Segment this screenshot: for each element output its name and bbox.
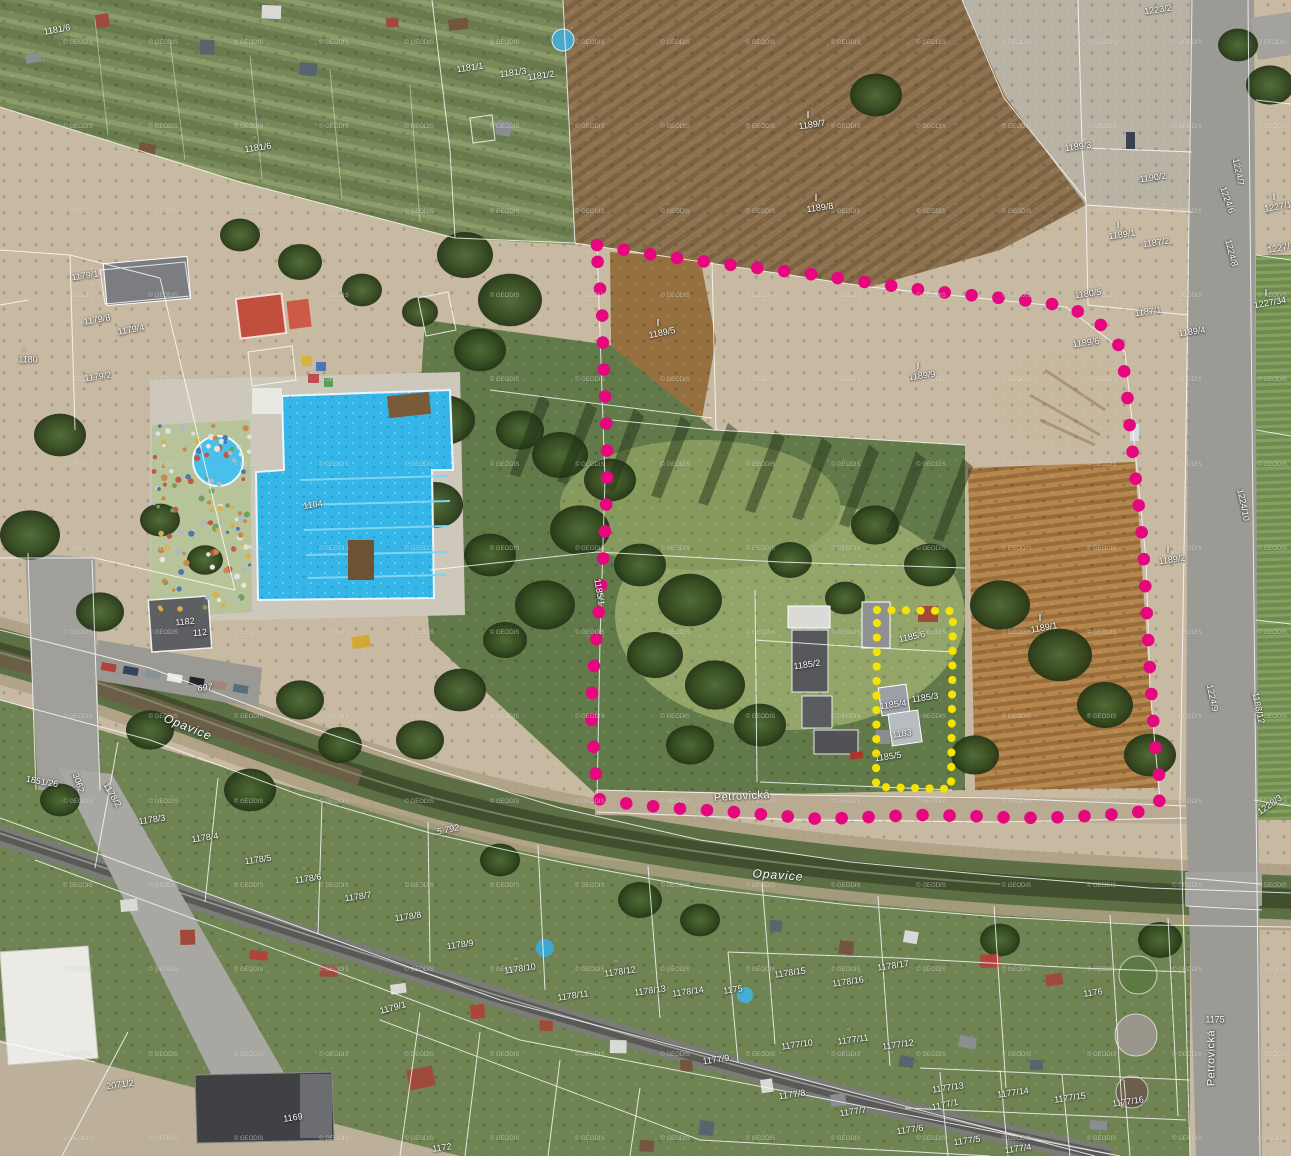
boundary-dot xyxy=(947,748,955,756)
copyright-watermark: © GEODIS xyxy=(404,1136,433,1142)
copyright-watermark: © GEODIS xyxy=(1002,462,1031,468)
copyright-watermark: © GEODIS xyxy=(660,1136,689,1142)
boundary-dot xyxy=(948,647,956,655)
copyright-watermark: © GEODIS xyxy=(149,377,178,383)
copyright-watermark: © GEODIS xyxy=(319,462,348,468)
tree xyxy=(0,510,60,559)
tree xyxy=(1077,682,1133,728)
copyright-watermark: © GEODIS xyxy=(319,1052,348,1058)
garden-shed xyxy=(200,40,215,55)
copyright-watermark: © GEODIS xyxy=(1087,124,1116,130)
copyright-watermark: © GEODIS xyxy=(575,293,604,299)
copyright-watermark: © GEODIS xyxy=(490,883,519,889)
tree xyxy=(224,769,276,812)
tree xyxy=(685,660,745,709)
copyright-watermark: © GEODIS xyxy=(234,1136,263,1142)
pavilion xyxy=(252,388,282,414)
beachgoer xyxy=(175,477,181,483)
boundary-dot xyxy=(947,777,955,785)
copyright-watermark: © GEODIS xyxy=(1087,546,1116,552)
copyright-watermark: © GEODIS xyxy=(1172,377,1201,383)
copyright-watermark: © GEODIS xyxy=(1257,40,1286,46)
beachgoer xyxy=(243,425,249,431)
garden-shed xyxy=(1089,1120,1107,1130)
beachgoer xyxy=(207,500,211,504)
boundary-dot xyxy=(970,810,983,823)
boundary-dot xyxy=(887,606,895,614)
beachgoer xyxy=(177,586,182,591)
copyright-watermark: © GEODIS xyxy=(746,1136,775,1142)
beachgoer xyxy=(157,487,161,491)
copyright-watermark: © GEODIS xyxy=(831,714,860,720)
copyright-watermark: © GEODIS xyxy=(1002,124,1031,130)
boundary-dot xyxy=(873,619,881,627)
copyright-watermark: © GEODIS xyxy=(63,1052,92,1058)
copyright-watermark: © GEODIS xyxy=(490,1052,519,1058)
boundary-dot xyxy=(945,607,953,615)
copyright-watermark: © GEODIS xyxy=(149,630,178,636)
boundary-dot xyxy=(948,661,956,669)
road-bridge xyxy=(1185,872,1262,906)
copyright-watermark: © GEODIS xyxy=(1087,377,1116,383)
beachgoer xyxy=(212,592,218,598)
copyright-watermark: © GEODIS xyxy=(319,967,348,973)
garden-shed xyxy=(680,1059,693,1072)
copyright-watermark: © GEODIS xyxy=(404,293,433,299)
tree xyxy=(658,574,722,626)
boundary-dot xyxy=(1132,806,1145,819)
crop-field-right xyxy=(1256,255,1291,820)
orthophoto-layer xyxy=(0,0,1291,1156)
copyright-watermark: © GEODIS xyxy=(63,799,92,805)
boundary-dot xyxy=(1145,688,1158,701)
copyright-watermark: © GEODIS xyxy=(1257,1136,1286,1142)
copyright-watermark: © GEODIS xyxy=(149,799,178,805)
copyright-watermark: © GEODIS xyxy=(1172,546,1201,552)
copyright-watermark: © GEODIS xyxy=(319,883,348,889)
beachgoer xyxy=(241,477,245,481)
industrial-building xyxy=(0,946,98,1065)
apartment-block-d xyxy=(814,730,858,754)
beachgoer xyxy=(200,520,206,526)
copyright-watermark: © GEODIS xyxy=(1172,883,1201,889)
copyright-watermark: © GEODIS xyxy=(1002,799,1031,805)
copyright-watermark: © GEODIS xyxy=(831,883,860,889)
copyright-watermark: © GEODIS xyxy=(660,630,689,636)
copyright-watermark: © GEODIS xyxy=(916,1136,945,1142)
copyright-watermark: © GEODIS xyxy=(63,630,92,636)
beachgoer xyxy=(223,568,229,574)
copyright-watermark: © GEODIS xyxy=(1087,967,1116,973)
boundary-dot xyxy=(701,804,714,817)
beachgoer xyxy=(241,469,246,474)
boundary-dot xyxy=(1129,472,1142,485)
copyright-watermark: © GEODIS xyxy=(1257,546,1286,552)
copyright-watermark: © GEODIS xyxy=(319,799,348,805)
copyright-watermark: © GEODIS xyxy=(575,630,604,636)
boundary-dot xyxy=(949,632,957,640)
copyright-watermark: © GEODIS xyxy=(490,40,519,46)
boundary-dot xyxy=(724,259,737,272)
copyright-watermark: © GEODIS xyxy=(575,1136,604,1142)
boundary-dot xyxy=(599,525,612,538)
boundary-dot xyxy=(586,687,599,700)
copyright-watermark: © GEODIS xyxy=(490,714,519,720)
tree xyxy=(850,74,902,117)
beachgoer xyxy=(161,440,166,445)
copyright-watermark: © GEODIS xyxy=(1172,967,1201,973)
copyright-watermark: © GEODIS xyxy=(1172,630,1201,636)
boundary-dot xyxy=(1071,305,1084,318)
beachgoer xyxy=(238,532,244,538)
tree xyxy=(187,545,223,575)
beachgoer xyxy=(162,444,165,447)
copyright-watermark: © GEODIS xyxy=(234,1052,263,1058)
beachgoer xyxy=(219,439,224,444)
boundary-dot xyxy=(872,764,880,772)
tree xyxy=(680,904,720,937)
beachgoer xyxy=(247,450,251,454)
copyright-watermark: © GEODIS xyxy=(660,799,689,805)
beachgoer xyxy=(225,503,230,508)
copyright-watermark: © GEODIS xyxy=(234,630,263,636)
boundary-dot xyxy=(1126,446,1139,459)
copyright-watermark: © GEODIS xyxy=(831,377,860,383)
boundary-dot xyxy=(916,809,929,822)
boundary-dot xyxy=(1139,580,1152,593)
beachgoer xyxy=(206,444,211,449)
beachgoer xyxy=(169,469,173,473)
copyright-watermark: © GEODIS xyxy=(1172,209,1201,215)
garden-shed xyxy=(539,1020,553,1031)
tree xyxy=(734,704,786,747)
garden-shed xyxy=(838,940,854,955)
beachgoer xyxy=(230,506,234,510)
garden-shed xyxy=(120,899,138,913)
copyright-watermark: © GEODIS xyxy=(1087,293,1116,299)
copyright-watermark: © GEODIS xyxy=(1257,124,1286,130)
beachgoer xyxy=(218,506,223,511)
copyright-watermark: © GEODIS xyxy=(234,546,263,552)
beachgoer xyxy=(234,573,240,579)
boundary-dot xyxy=(1118,365,1131,378)
copyright-watermark: © GEODIS xyxy=(1002,377,1031,383)
beachgoer xyxy=(207,521,211,525)
copyright-watermark: © GEODIS xyxy=(149,546,178,552)
copyright-watermark: © GEODIS xyxy=(404,714,433,720)
tree xyxy=(1218,29,1258,62)
beachgoer xyxy=(156,432,160,436)
copyright-watermark: © GEODIS xyxy=(490,799,519,805)
copyright-watermark: © GEODIS xyxy=(63,967,92,973)
copyright-watermark: © GEODIS xyxy=(916,799,945,805)
tree xyxy=(34,414,86,457)
beachgoer xyxy=(170,508,174,512)
copyright-watermark: © GEODIS xyxy=(149,1052,178,1058)
beachgoer xyxy=(191,432,195,436)
copyright-watermark: © GEODIS xyxy=(746,293,775,299)
copyright-watermark: © GEODIS xyxy=(916,377,945,383)
copyright-watermark: © GEODIS xyxy=(660,714,689,720)
boundary-dot xyxy=(940,785,948,793)
copyright-watermark: © GEODIS xyxy=(490,1136,519,1142)
boundary-dot xyxy=(882,783,890,791)
copyright-watermark: © GEODIS xyxy=(490,967,519,973)
boundary-dot xyxy=(591,256,604,269)
beachgoer xyxy=(241,583,246,588)
copyright-watermark: © GEODIS xyxy=(575,714,604,720)
copyright-watermark: © GEODIS xyxy=(916,209,945,215)
copyright-watermark: © GEODIS xyxy=(1172,293,1201,299)
copyright-watermark: © GEODIS xyxy=(63,124,92,130)
copyright-watermark: © GEODIS xyxy=(234,293,263,299)
copyright-watermark: © GEODIS xyxy=(234,714,263,720)
boundary-dot xyxy=(589,767,602,780)
copyright-watermark: © GEODIS xyxy=(575,462,604,468)
beachgoer xyxy=(239,452,243,456)
beachgoer xyxy=(217,598,221,602)
copyright-watermark: © GEODIS xyxy=(490,377,519,383)
boundary-dot xyxy=(862,811,875,824)
copyright-watermark: © GEODIS xyxy=(63,377,92,383)
boundary-dot xyxy=(948,676,956,684)
copyright-watermark: © GEODIS xyxy=(575,40,604,46)
copyright-watermark: © GEODIS xyxy=(660,293,689,299)
copyright-watermark: © GEODIS xyxy=(916,462,945,468)
copyright-watermark: © GEODIS xyxy=(916,630,945,636)
garden-shed xyxy=(1030,1060,1043,1070)
boundary-dot xyxy=(600,498,613,511)
copyright-watermark: © GEODIS xyxy=(319,1136,348,1142)
boundary-dot xyxy=(943,809,956,822)
beachgoer xyxy=(213,435,218,440)
garden-shed xyxy=(639,1140,654,1152)
building-1182 xyxy=(148,596,211,652)
copyright-watermark: © GEODIS xyxy=(1172,124,1201,130)
garden-shed xyxy=(903,930,919,944)
house-1185-4 xyxy=(878,684,910,716)
copyright-watermark: © GEODIS xyxy=(1257,799,1286,805)
copyright-watermark: © GEODIS xyxy=(575,1052,604,1058)
tree xyxy=(76,592,124,631)
beachgoer xyxy=(158,424,162,428)
building-1169-annex xyxy=(300,1074,332,1138)
copyright-watermark: © GEODIS xyxy=(1002,293,1031,299)
boundary-dot xyxy=(916,606,924,614)
boundary-dot xyxy=(885,279,898,292)
copyright-watermark: © GEODIS xyxy=(746,124,775,130)
boundary-dot xyxy=(831,272,844,285)
copyright-watermark: © GEODIS xyxy=(234,124,263,130)
road-left xyxy=(25,553,100,790)
boundary-dot xyxy=(1024,811,1037,824)
copyright-watermark: © GEODIS xyxy=(916,293,945,299)
copyright-watermark: © GEODIS xyxy=(1002,1052,1031,1058)
copyright-watermark: © GEODIS xyxy=(63,209,92,215)
copyright-watermark: © GEODIS xyxy=(404,630,433,636)
copyright-watermark: © GEODIS xyxy=(404,209,433,215)
boundary-dot xyxy=(592,606,605,619)
beachgoer xyxy=(159,557,165,563)
copyright-watermark: © GEODIS xyxy=(660,967,689,973)
copyright-watermark: © GEODIS xyxy=(1002,714,1031,720)
copyright-watermark: © GEODIS xyxy=(149,883,178,889)
copyright-watermark: © GEODIS xyxy=(1257,293,1286,299)
beachgoer xyxy=(158,605,162,609)
copyright-watermark: © GEODIS xyxy=(746,967,775,973)
boundary-dot xyxy=(597,552,610,565)
garden-pool-3 xyxy=(737,987,753,1003)
boundary-dot xyxy=(601,444,614,457)
tree xyxy=(825,582,865,615)
copyright-watermark: © GEODIS xyxy=(1087,799,1116,805)
boundary-dot xyxy=(755,808,768,821)
boundary-dot xyxy=(671,252,684,265)
beachgoer xyxy=(178,569,184,575)
tent-large xyxy=(236,293,287,338)
tree xyxy=(342,274,382,307)
boundary-dot xyxy=(587,741,600,754)
copyright-watermark: © GEODIS xyxy=(234,967,263,973)
copyright-watermark: © GEODIS xyxy=(404,546,433,552)
boundary-dot xyxy=(997,811,1010,824)
garden-pool-2 xyxy=(536,939,554,957)
boundary-dot xyxy=(925,784,933,792)
beachgoer xyxy=(152,469,157,474)
beachgoer xyxy=(244,511,250,517)
copyright-watermark: © GEODIS xyxy=(1002,630,1031,636)
tree xyxy=(454,329,506,372)
beachgoer xyxy=(248,563,251,566)
copyright-watermark: © GEODIS xyxy=(831,293,860,299)
tree xyxy=(220,219,260,252)
tree xyxy=(483,622,527,658)
boundary-dot xyxy=(588,660,601,673)
copyright-watermark: © GEODIS xyxy=(831,1052,860,1058)
copyright-watermark: © GEODIS xyxy=(831,124,860,130)
copyright-watermark: © GEODIS xyxy=(234,799,263,805)
copyright-watermark: © GEODIS xyxy=(63,714,92,720)
copyright-watermark: © GEODIS xyxy=(404,883,433,889)
beachgoer xyxy=(156,505,160,509)
copyright-watermark: © GEODIS xyxy=(1002,1136,1031,1142)
copyright-watermark: © GEODIS xyxy=(746,799,775,805)
tree xyxy=(627,632,683,678)
boundary-dot xyxy=(872,691,880,699)
copyright-watermark: © GEODIS xyxy=(149,40,178,46)
beachgoer xyxy=(236,598,240,602)
boundary-dot xyxy=(872,735,880,743)
aerial-map-canvas[interactable]: © GEODIS© GEODIS© GEODIS© GEODIS© GEODIS… xyxy=(0,0,1291,1156)
apartment-block-a xyxy=(788,606,830,628)
boundary-dot xyxy=(1153,794,1166,807)
copyright-watermark: © GEODIS xyxy=(660,883,689,889)
copyright-watermark: © GEODIS xyxy=(916,883,945,889)
beachgoer xyxy=(230,523,235,528)
boundary-dot xyxy=(1051,811,1064,824)
copyright-watermark: © GEODIS xyxy=(916,546,945,552)
beachgoer xyxy=(163,483,167,487)
beachgoer xyxy=(235,518,239,522)
copyright-watermark: © GEODIS xyxy=(575,377,604,383)
beachgoer xyxy=(223,440,227,444)
boundary-dot xyxy=(948,705,956,713)
tree xyxy=(276,680,324,719)
copyright-watermark: © GEODIS xyxy=(1172,714,1201,720)
beachgoer xyxy=(243,519,247,523)
copyright-watermark: © GEODIS xyxy=(660,377,689,383)
beachgoer xyxy=(188,530,194,536)
garden-shed xyxy=(470,1004,485,1019)
boundary-dot xyxy=(1105,808,1118,821)
boundary-dot xyxy=(647,800,660,813)
copyright-watermark: © GEODIS xyxy=(746,377,775,383)
copyright-watermark: © GEODIS xyxy=(1257,630,1286,636)
copyright-watermark: © GEODIS xyxy=(63,1136,92,1142)
tree xyxy=(666,725,714,764)
copyright-watermark: © GEODIS xyxy=(575,967,604,973)
boundary-dot xyxy=(644,248,657,261)
copyright-watermark: © GEODIS xyxy=(149,967,178,973)
copyright-watermark: © GEODIS xyxy=(1087,1136,1116,1142)
boundary-dot xyxy=(596,309,609,322)
pool-island xyxy=(387,392,431,418)
beachgoer xyxy=(177,606,182,611)
beachgoer xyxy=(216,482,221,487)
copyright-watermark: © GEODIS xyxy=(404,40,433,46)
copyright-watermark: © GEODIS xyxy=(916,1052,945,1058)
boundary-dot xyxy=(600,417,613,430)
copyright-watermark: © GEODIS xyxy=(916,967,945,973)
boundary-dot xyxy=(948,690,956,698)
copyright-watermark: © GEODIS xyxy=(1257,377,1286,383)
copyright-watermark: © GEODIS xyxy=(1087,883,1116,889)
garden-shed xyxy=(698,1120,714,1136)
copyright-watermark: © GEODIS xyxy=(149,714,178,720)
tank-gray xyxy=(1115,1014,1157,1056)
garden-shed xyxy=(769,920,782,932)
apartment-block-b xyxy=(792,630,828,692)
copyright-watermark: © GEODIS xyxy=(149,293,178,299)
tree xyxy=(464,534,516,577)
beachgoer xyxy=(215,528,219,532)
beachgoer xyxy=(183,560,189,566)
copyright-watermark: © GEODIS xyxy=(490,124,519,130)
boundary-dot xyxy=(1142,634,1155,647)
garden-shed xyxy=(980,954,999,968)
beachgoer xyxy=(185,474,190,479)
tree xyxy=(1138,922,1182,958)
beachgoer xyxy=(236,527,240,531)
tank-green xyxy=(1119,956,1157,994)
beachgoer xyxy=(183,447,187,451)
copyright-watermark: © GEODIS xyxy=(575,546,604,552)
boundary-dot xyxy=(1123,419,1136,432)
copyright-watermark: © GEODIS xyxy=(916,40,945,46)
beachgoer xyxy=(199,496,205,502)
copyright-watermark: © GEODIS xyxy=(404,1052,433,1058)
boundary-dot xyxy=(911,784,919,792)
copyright-watermark: © GEODIS xyxy=(660,124,689,130)
copyright-watermark: © GEODIS xyxy=(746,883,775,889)
copyright-watermark: © GEODIS xyxy=(149,124,178,130)
boundary-dot xyxy=(965,289,978,302)
garden-shed xyxy=(610,1040,627,1053)
garden-shed xyxy=(898,1055,914,1068)
garden-shed xyxy=(1045,973,1063,987)
boundary-dot xyxy=(751,262,764,275)
beachgoer xyxy=(167,533,172,538)
